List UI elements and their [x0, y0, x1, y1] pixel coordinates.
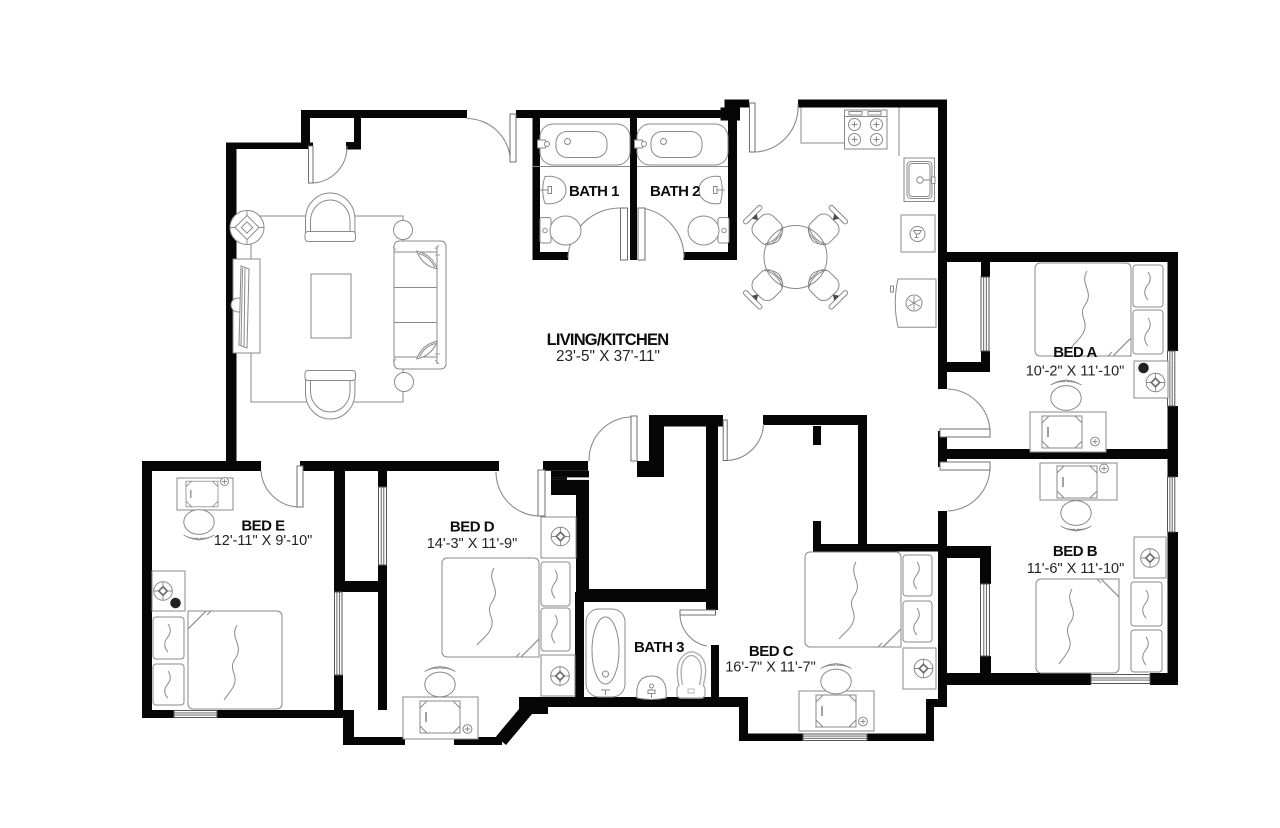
- svg-text:BED C: BED C: [749, 643, 794, 660]
- svg-text:BED A: BED A: [1053, 344, 1097, 361]
- svg-text:16'-7" X 11'-7": 16'-7" X 11'-7": [725, 660, 816, 676]
- svg-text:BED D: BED D: [450, 519, 495, 536]
- svg-text:BED B: BED B: [1053, 543, 1098, 560]
- svg-text:LIVING/KITCHEN: LIVING/KITCHEN: [547, 331, 669, 349]
- svg-text:BED E: BED E: [241, 518, 285, 535]
- svg-text:23'-5" X 37'-11": 23'-5" X 37'-11": [556, 348, 660, 365]
- svg-text:BATH 3: BATH 3: [634, 639, 684, 656]
- svg-text:BATH 2: BATH 2: [650, 183, 700, 200]
- svg-text:14'-3" X 11'-9": 14'-3" X 11'-9": [427, 536, 518, 552]
- svg-text:12'-11" X 9'-10": 12'-11" X 9'-10": [214, 533, 313, 549]
- svg-text:10'-2" X 11'-10": 10'-2" X 11'-10": [1026, 364, 1125, 380]
- svg-text:BATH 1: BATH 1: [569, 183, 619, 200]
- svg-text:11'-6" X 11'-10": 11'-6" X 11'-10": [1027, 561, 1125, 577]
